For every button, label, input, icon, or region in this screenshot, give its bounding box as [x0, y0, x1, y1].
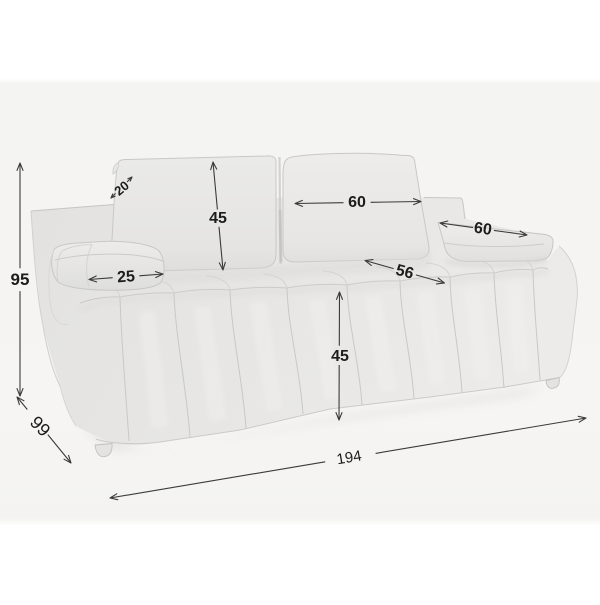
svg-text:25: 25 — [117, 268, 136, 286]
svg-text:45: 45 — [209, 210, 227, 227]
svg-text:45: 45 — [331, 348, 349, 365]
svg-text:60: 60 — [348, 194, 366, 211]
svg-text:95: 95 — [11, 270, 30, 289]
svg-text:60: 60 — [473, 220, 493, 239]
